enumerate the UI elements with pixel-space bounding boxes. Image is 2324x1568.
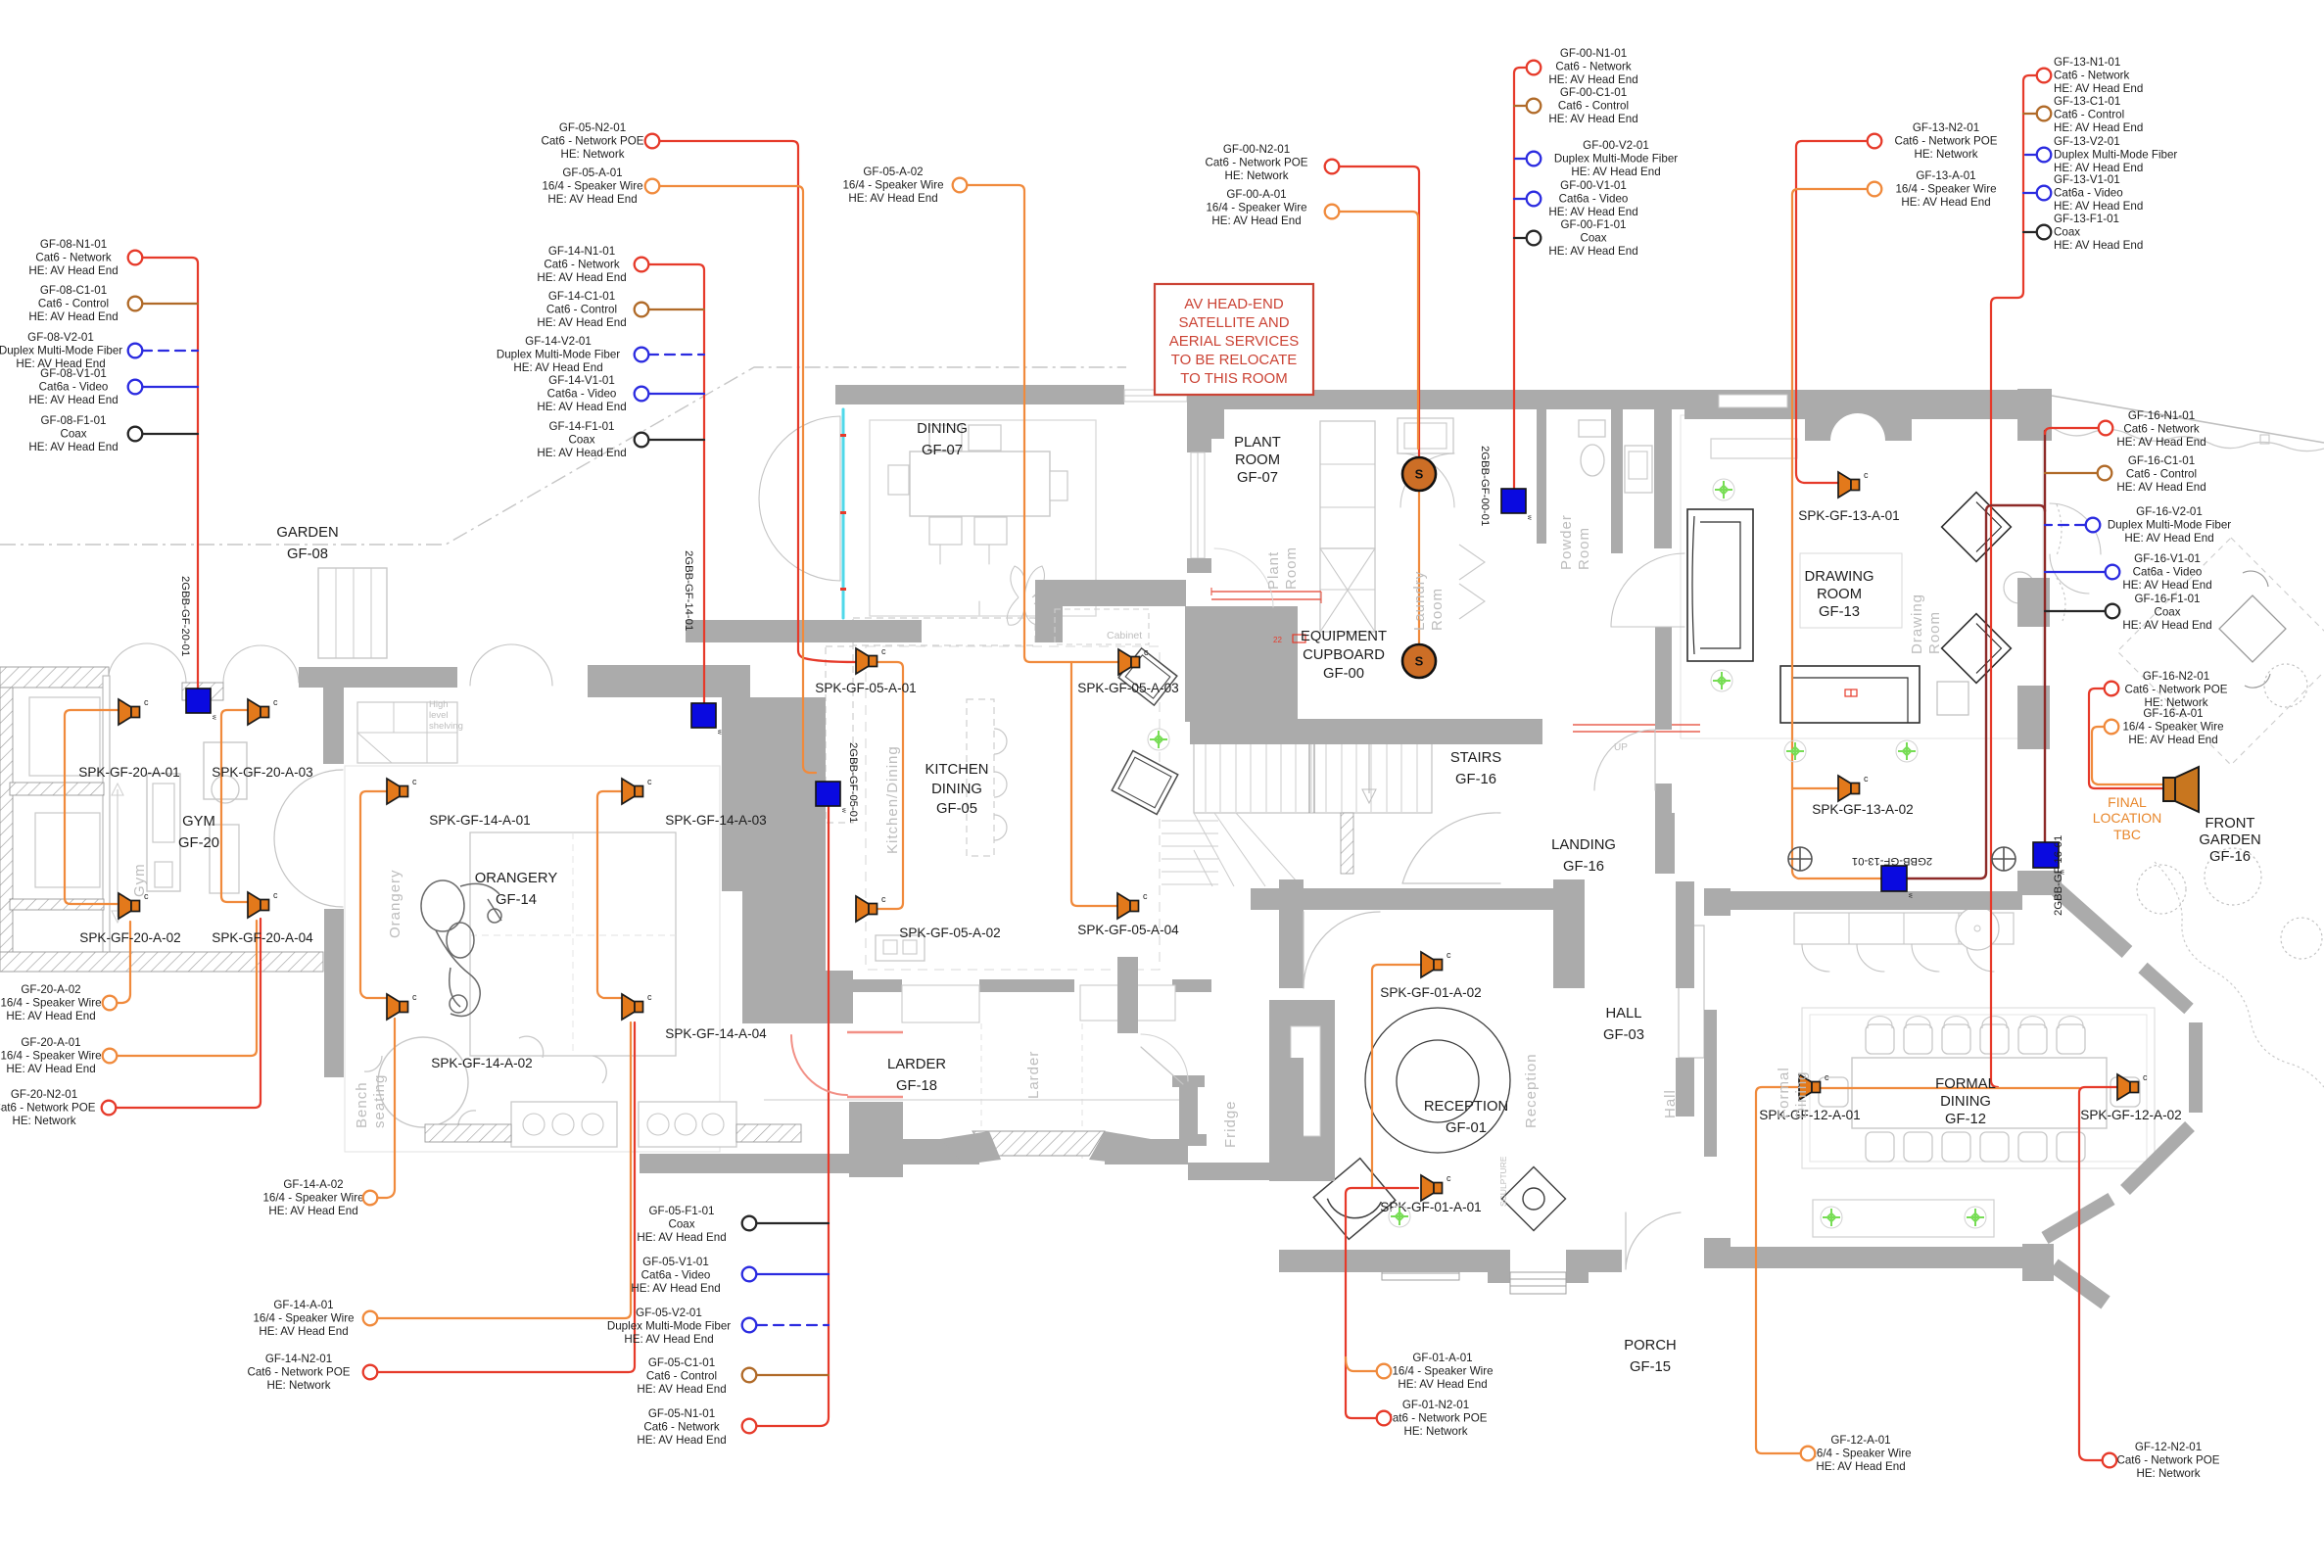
svg-text:GF-00-N1-01Cat6 - NetworkHE: A: GF-00-N1-01Cat6 - NetworkHE: AV Head End: [1548, 47, 1637, 86]
svg-text:SPK-GF-20-A-03: SPK-GF-20-A-03: [212, 765, 313, 780]
svg-text:SPK-GF-20-A-02: SPK-GF-20-A-02: [79, 930, 181, 945]
svg-text:w: w: [1526, 514, 1533, 520]
svg-text:c: c: [2143, 1072, 2148, 1082]
svg-text:SPK-GF-14-A-01: SPK-GF-14-A-01: [429, 813, 531, 828]
svg-text:GF-08-N1-01Cat6 - NetworkHE: A: GF-08-N1-01Cat6 - NetworkHE: AV Head End: [28, 238, 118, 277]
svg-text:c: c: [1144, 647, 1149, 657]
svg-text:GF-07: GF-07: [922, 443, 963, 458]
svg-text:Laundry: Laundry: [1411, 571, 1428, 631]
svg-text:GF-16-V1-01Cat6a - VideoHE: AV: GF-16-V1-01Cat6a - VideoHE: AV Head End: [2122, 552, 2211, 592]
svg-text:Fridge: Fridge: [1222, 1100, 1239, 1148]
svg-text:w: w: [211, 714, 217, 720]
svg-text:SPK-GF-05-A-02: SPK-GF-05-A-02: [899, 926, 1001, 940]
svg-text:SPK-GF-14-A-02: SPK-GF-14-A-02: [431, 1056, 533, 1070]
svg-text:GF-00-C1-01Cat6 - ControlHE: A: GF-00-C1-01Cat6 - ControlHE: AV Head End: [1548, 86, 1637, 125]
svg-text:Larder: Larder: [1025, 1051, 1042, 1099]
svg-text:Bench: Bench: [354, 1081, 370, 1128]
svg-text:2GBB-GF-05-01: 2GBB-GF-05-01: [847, 742, 859, 823]
svg-text:HALL: HALL: [1605, 1006, 1641, 1022]
svg-text:SPK-GF-01-A-02: SPK-GF-01-A-02: [1380, 985, 1482, 1000]
svg-text:GF-05-V1-01Cat6a - VideoHE: AV: GF-05-V1-01Cat6a - VideoHE: AV Head End: [631, 1256, 720, 1295]
svg-text:Hall: Hall: [1662, 1089, 1679, 1118]
svg-text:22: 22: [1273, 636, 1282, 644]
svg-text:S: S: [1415, 467, 1424, 482]
svg-text:GF-05: GF-05: [936, 801, 977, 817]
svg-text:S: S: [1415, 654, 1424, 669]
svg-text:GF-14: GF-14: [496, 892, 537, 908]
svg-text:CUPBOARD: CUPBOARD: [1303, 647, 1385, 663]
svg-text:SPK-GF-05-A-01: SPK-GF-05-A-01: [815, 681, 917, 695]
svg-text:EQUIPMENT: EQUIPMENT: [1301, 629, 1387, 644]
svg-text:GF-16-C1-01Cat6 - ControlHE: A: GF-16-C1-01Cat6 - ControlHE: AV Head End: [2116, 454, 2205, 494]
svg-text:seating: seating: [371, 1074, 388, 1128]
svg-text:RECEPTION: RECEPTION: [1424, 1099, 1508, 1115]
svg-text:GF-20: GF-20: [178, 835, 219, 851]
svg-text:Drawing: Drawing: [1909, 594, 1925, 654]
svg-text:AERIAL SERVICES: AERIAL SERVICES: [1169, 333, 1300, 350]
svg-text:FINAL: FINAL: [2108, 794, 2147, 810]
svg-text:SPK-GF-12-A-01: SPK-GF-12-A-01: [1759, 1108, 1861, 1122]
svg-text:Cabinet: Cabinet: [1107, 630, 1142, 641]
svg-text:GF-16-N1-01Cat6 - NetworkHE: A: GF-16-N1-01Cat6 - NetworkHE: AV Head End: [2116, 409, 2205, 449]
svg-text:SPK-GF-20-A-04: SPK-GF-20-A-04: [212, 930, 313, 945]
svg-text:Dining: Dining: [1793, 1070, 1810, 1118]
svg-text:High: High: [429, 699, 449, 710]
svg-text:SPK-GF-14-A-03: SPK-GF-14-A-03: [665, 813, 767, 828]
svg-text:shelving: shelving: [429, 721, 463, 732]
svg-text:GF-08-C1-01Cat6 - ControlHE: A: GF-08-C1-01Cat6 - ControlHE: AV Head End: [28, 284, 118, 323]
svg-text:GF-14-C1-01Cat6 - ControlHE: A: GF-14-C1-01Cat6 - ControlHE: AV Head End: [537, 290, 626, 329]
svg-text:ROOM: ROOM: [1235, 452, 1280, 468]
svg-text:GF-01: GF-01: [1446, 1120, 1487, 1136]
svg-text:2GBB-GF-00-01: 2GBB-GF-00-01: [1479, 446, 1491, 526]
svg-text:DINING: DINING: [1940, 1094, 1991, 1110]
svg-text:Gym: Gym: [131, 863, 148, 897]
svg-text:Orangery: Orangery: [387, 869, 403, 938]
svg-text:c: c: [273, 890, 278, 900]
svg-text:c: c: [647, 777, 652, 786]
svg-text:FORMAL: FORMAL: [1935, 1076, 1996, 1092]
svg-text:c: c: [1447, 950, 1451, 960]
svg-text:GF-07: GF-07: [1237, 470, 1278, 486]
svg-text:SPK-GF-13-A-02: SPK-GF-13-A-02: [1812, 802, 1914, 817]
svg-text:c: c: [1864, 470, 1869, 480]
svg-text:w: w: [716, 729, 723, 735]
svg-text:c: c: [412, 992, 417, 1002]
svg-text:c: c: [1825, 1072, 1829, 1082]
svg-text:PORCH: PORCH: [1624, 1338, 1676, 1354]
svg-text:c: c: [881, 894, 886, 904]
svg-text:GF-13: GF-13: [1819, 604, 1860, 620]
svg-text:DINING: DINING: [917, 421, 968, 437]
svg-text:GF-08-V1-01Cat6a - VideoHE: AV: GF-08-V1-01Cat6a - VideoHE: AV Head End: [28, 367, 118, 406]
svg-text:GF-03: GF-03: [1603, 1027, 1644, 1043]
svg-text:SPK-GF-05-A-04: SPK-GF-05-A-04: [1077, 923, 1179, 937]
svg-text:DINING: DINING: [931, 782, 982, 797]
svg-text:2GBB-GF-13-01: 2GBB-GF-13-01: [1852, 855, 1932, 867]
svg-text:GYM: GYM: [182, 814, 215, 830]
svg-text:TBC: TBC: [2113, 827, 2141, 842]
svg-text:c: c: [647, 992, 652, 1002]
svg-text:FRONT: FRONT: [2205, 816, 2255, 832]
svg-text:PLANT: PLANT: [1234, 435, 1281, 451]
svg-text:GARDEN: GARDEN: [2199, 832, 2260, 848]
svg-text:w: w: [1907, 892, 1914, 898]
svg-text:STAIRS: STAIRS: [1450, 750, 1501, 766]
svg-text:Formal: Formal: [1776, 1067, 1792, 1118]
svg-text:SPK-GF-20-A-01: SPK-GF-20-A-01: [78, 765, 180, 780]
svg-text:SPK-GF-01-A-01: SPK-GF-01-A-01: [1380, 1200, 1482, 1214]
svg-text:GF-16: GF-16: [2209, 849, 2251, 865]
svg-text:GF-05-C1-01Cat6 - ControlHE: A: GF-05-C1-01Cat6 - ControlHE: AV Head End: [637, 1356, 726, 1396]
svg-text:TO BE RELOCATE: TO BE RELOCATE: [1171, 352, 1298, 368]
svg-text:GF-15: GF-15: [1630, 1359, 1671, 1375]
svg-text:2GBB-GF-14-01: 2GBB-GF-14-01: [683, 550, 694, 631]
svg-text:Kitchen/Dining: Kitchen/Dining: [884, 745, 901, 854]
svg-text:SPK-GF-14-A-04: SPK-GF-14-A-04: [665, 1026, 767, 1041]
svg-text:SPK-GF-12-A-02: SPK-GF-12-A-02: [2080, 1108, 2182, 1122]
svg-text:c: c: [1143, 891, 1148, 901]
svg-text:LARDER: LARDER: [887, 1057, 946, 1072]
svg-text:c: c: [1864, 774, 1869, 784]
svg-text:SPK-GF-13-A-01: SPK-GF-13-A-01: [1798, 508, 1900, 523]
svg-text:KITCHEN: KITCHEN: [925, 762, 989, 778]
svg-text:LOCATION: LOCATION: [2093, 810, 2162, 826]
svg-text:GF-14-V1-01Cat6a - VideoHE: AV: GF-14-V1-01Cat6a - VideoHE: AV Head End: [537, 374, 626, 413]
svg-text:DRAWING: DRAWING: [1805, 569, 1874, 585]
svg-text:GF-18: GF-18: [896, 1078, 937, 1094]
svg-text:SPK-GF-05-A-03: SPK-GF-05-A-03: [1077, 681, 1179, 695]
svg-text:TO THIS ROOM: TO THIS ROOM: [1180, 370, 1287, 387]
svg-text:Room: Room: [1576, 527, 1592, 570]
svg-text:ROOM: ROOM: [1817, 587, 1862, 602]
svg-text:GF-08: GF-08: [287, 546, 328, 562]
svg-text:Plant: Plant: [1265, 551, 1282, 590]
svg-text:c: c: [273, 697, 278, 707]
svg-text:Room: Room: [1429, 588, 1446, 631]
svg-text:GARDEN: GARDEN: [276, 525, 338, 541]
svg-text:ORANGERY: ORANGERY: [475, 871, 558, 886]
svg-text:c: c: [1447, 1173, 1451, 1183]
svg-text:GF-00-V1-01Cat6a - VideoHE: AV: GF-00-V1-01Cat6a - VideoHE: AV Head End: [1548, 179, 1637, 218]
svg-text:c: c: [144, 697, 149, 707]
svg-text:GF-05-N1-01Cat6 - NetworkHE: A: GF-05-N1-01Cat6 - NetworkHE: AV Head End: [637, 1407, 726, 1447]
svg-text:level: level: [429, 710, 449, 721]
svg-text:c: c: [881, 646, 886, 656]
svg-text:Room: Room: [1283, 546, 1300, 590]
svg-text:2GBB-GF-20-01: 2GBB-GF-20-01: [179, 576, 191, 656]
svg-text:GF-16: GF-16: [1563, 859, 1604, 875]
svg-text:Powder: Powder: [1558, 514, 1575, 570]
svg-text:AV HEAD-END: AV HEAD-END: [1184, 296, 1284, 312]
svg-text:SATELLITE AND: SATELLITE AND: [1178, 314, 1289, 331]
svg-text:w: w: [840, 807, 847, 813]
svg-text:LANDING: LANDING: [1551, 837, 1616, 853]
svg-text:GF-14-N1-01Cat6 - NetworkHE: A: GF-14-N1-01Cat6 - NetworkHE: AV Head End: [537, 245, 626, 284]
svg-text:GF-12: GF-12: [1945, 1112, 1986, 1127]
svg-text:Room: Room: [1926, 611, 1943, 654]
svg-text:SCULPTURE: SCULPTURE: [1498, 1156, 1508, 1207]
svg-text:GF-16: GF-16: [1455, 772, 1496, 787]
svg-text:GF-00: GF-00: [1323, 666, 1364, 682]
svg-text:2GBB-GF-16-01: 2GBB-GF-16-01: [2053, 835, 2064, 916]
svg-text:Reception: Reception: [1523, 1053, 1540, 1128]
svg-text:c: c: [412, 777, 417, 786]
